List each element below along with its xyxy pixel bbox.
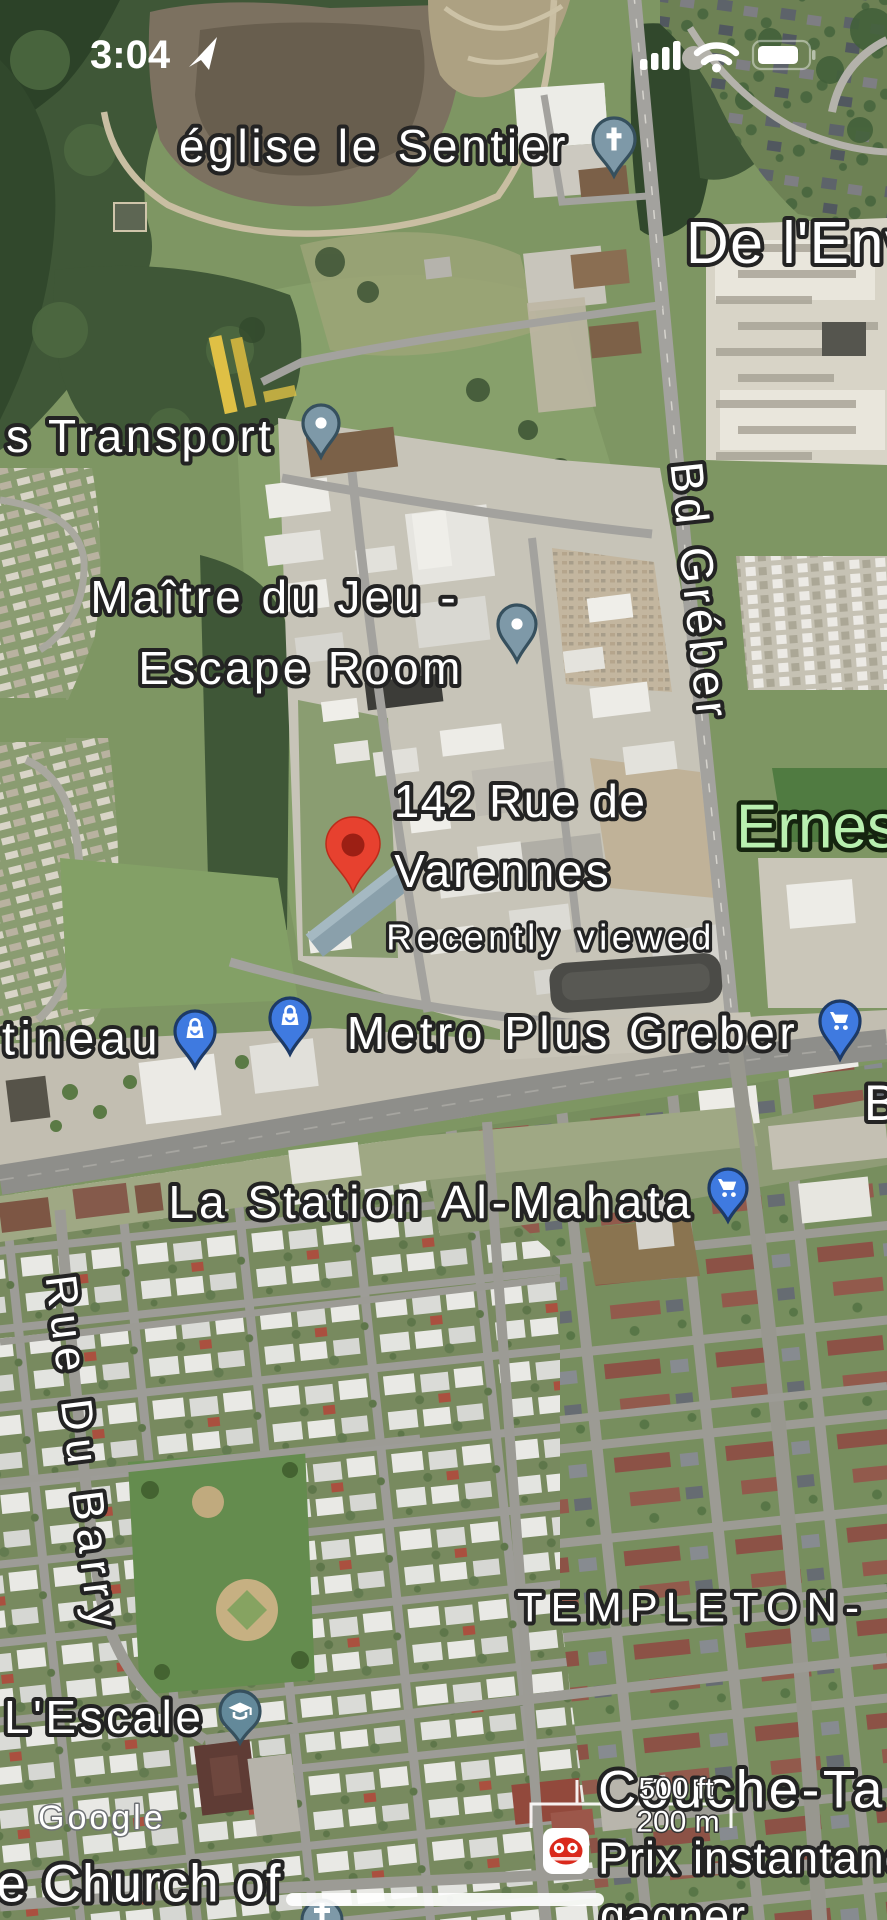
svg-text:gagner: gagner: [600, 1891, 746, 1920]
svg-text:3:04: 3:04: [90, 33, 171, 77]
svg-text:De l'Envolée: De l'Envolée: [686, 210, 887, 276]
svg-text:s Transport: s Transport: [6, 410, 275, 462]
svg-text:Metro Plus Greber: Metro Plus Greber: [347, 1007, 799, 1059]
svg-text:200 m: 200 m: [636, 1806, 719, 1839]
svg-text:142 Rue de: 142 Rue de: [394, 775, 647, 827]
svg-text:e Church of: e Church of: [0, 1855, 281, 1914]
svg-text:Prix instantané: Prix instantané: [598, 1833, 887, 1884]
svg-text:Ernest-: Ernest-: [736, 793, 887, 862]
svg-text:Escape Room: Escape Room: [138, 642, 463, 694]
svg-text:tineau: tineau: [2, 1012, 163, 1065]
svg-text:500 ft: 500 ft: [638, 1773, 714, 1806]
svg-text:La Station Al-Mahata: La Station Al-Mahata: [168, 1176, 695, 1228]
svg-text:Recently viewed: Recently viewed: [386, 917, 716, 958]
svg-text:L'Escale: L'Escale: [4, 1691, 204, 1743]
svg-text:Maître du Jeu -: Maître du Jeu -: [90, 571, 459, 623]
svg-text:Varennes: Varennes: [394, 845, 612, 897]
svg-text:église le Sentier: église le Sentier: [179, 120, 569, 172]
svg-text:TEMPLETON-: TEMPLETON-: [517, 1584, 867, 1631]
svg-text:Bo: Bo: [864, 1075, 887, 1131]
svg-text:Google: Google: [38, 1799, 166, 1837]
